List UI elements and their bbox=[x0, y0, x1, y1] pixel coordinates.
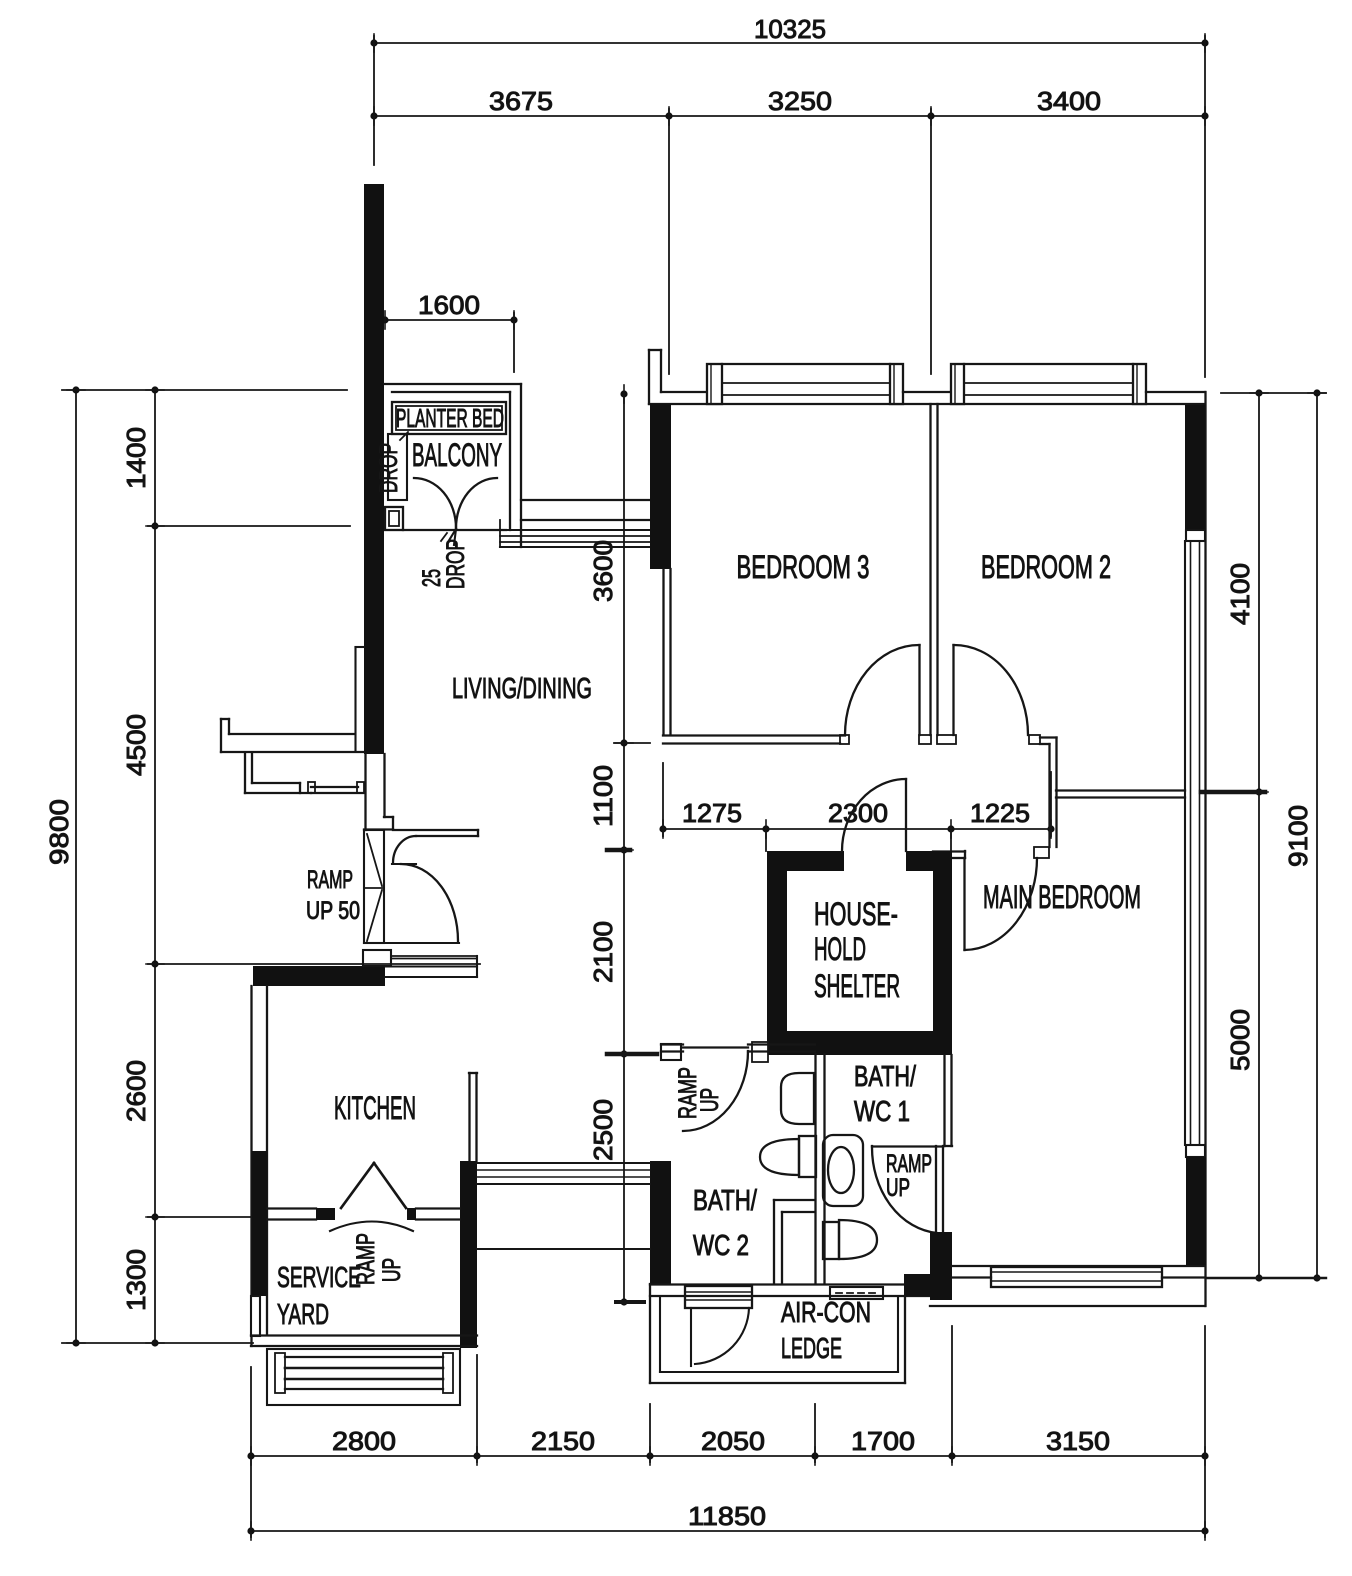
svg-text:SHELTER: SHELTER bbox=[814, 968, 900, 1004]
svg-text:2800: 2800 bbox=[332, 1426, 396, 1456]
svg-text:BATH/: BATH/ bbox=[854, 1061, 917, 1093]
svg-text:2050: 2050 bbox=[701, 1426, 765, 1456]
svg-text:KITCHEN: KITCHEN bbox=[334, 1090, 416, 1126]
svg-text:HOUSE-: HOUSE- bbox=[814, 896, 898, 932]
svg-text:3400: 3400 bbox=[1037, 86, 1101, 116]
svg-text:9800: 9800 bbox=[44, 799, 74, 865]
svg-text:UP 50: UP 50 bbox=[306, 897, 360, 925]
svg-text:PLANTER BED: PLANTER BED bbox=[396, 403, 504, 433]
svg-text:MAIN BEDROOM: MAIN BEDROOM bbox=[983, 879, 1141, 915]
svg-text:UP: UP bbox=[696, 1088, 724, 1112]
svg-text:BEDROOM 3: BEDROOM 3 bbox=[737, 549, 870, 585]
svg-text:1400: 1400 bbox=[121, 427, 151, 489]
svg-text:UP: UP bbox=[886, 1174, 910, 1202]
svg-text:2100: 2100 bbox=[588, 921, 618, 983]
svg-text:LIVING/DINING: LIVING/DINING bbox=[452, 673, 592, 705]
svg-text:BATH/: BATH/ bbox=[693, 1185, 758, 1217]
svg-text:WC 1: WC 1 bbox=[854, 1096, 910, 1128]
svg-text:1100: 1100 bbox=[588, 765, 618, 827]
svg-text:9100: 9100 bbox=[1283, 805, 1313, 867]
svg-text:5000: 5000 bbox=[1225, 1009, 1255, 1071]
svg-text:3675: 3675 bbox=[489, 86, 553, 116]
svg-text:BALCONY: BALCONY bbox=[412, 437, 502, 473]
svg-text:1700: 1700 bbox=[851, 1426, 915, 1456]
svg-text:YARD: YARD bbox=[277, 1299, 329, 1331]
svg-text:BEDROOM 2: BEDROOM 2 bbox=[981, 549, 1111, 585]
svg-text:1225: 1225 bbox=[970, 798, 1030, 828]
svg-text:LEDGE: LEDGE bbox=[781, 1333, 842, 1365]
svg-text:1600: 1600 bbox=[418, 290, 480, 320]
svg-text:4500: 4500 bbox=[121, 714, 151, 776]
svg-text:2150: 2150 bbox=[531, 1426, 595, 1456]
svg-text:1300: 1300 bbox=[121, 1249, 151, 1311]
svg-text:11850: 11850 bbox=[688, 1501, 766, 1531]
svg-text:1275: 1275 bbox=[682, 798, 742, 828]
svg-text:2600: 2600 bbox=[121, 1060, 151, 1122]
svg-text:3600: 3600 bbox=[588, 540, 618, 602]
svg-text:4100: 4100 bbox=[1225, 563, 1255, 625]
svg-text:UP: UP bbox=[378, 1258, 406, 1282]
svg-text:DROP: DROP bbox=[442, 539, 470, 589]
svg-text:DROP: DROP bbox=[375, 443, 403, 493]
svg-text:WC 2: WC 2 bbox=[693, 1230, 749, 1262]
svg-text:10325: 10325 bbox=[754, 14, 826, 44]
svg-text:HOLD: HOLD bbox=[814, 931, 866, 967]
svg-text:SERVICE: SERVICE bbox=[277, 1262, 361, 1294]
svg-text:RAMP: RAMP bbox=[307, 866, 353, 894]
svg-text:AIR-CON: AIR-CON bbox=[781, 1297, 871, 1329]
svg-text:3150: 3150 bbox=[1046, 1426, 1110, 1456]
svg-text:3250: 3250 bbox=[768, 86, 832, 116]
svg-text:2500: 2500 bbox=[588, 1099, 618, 1161]
